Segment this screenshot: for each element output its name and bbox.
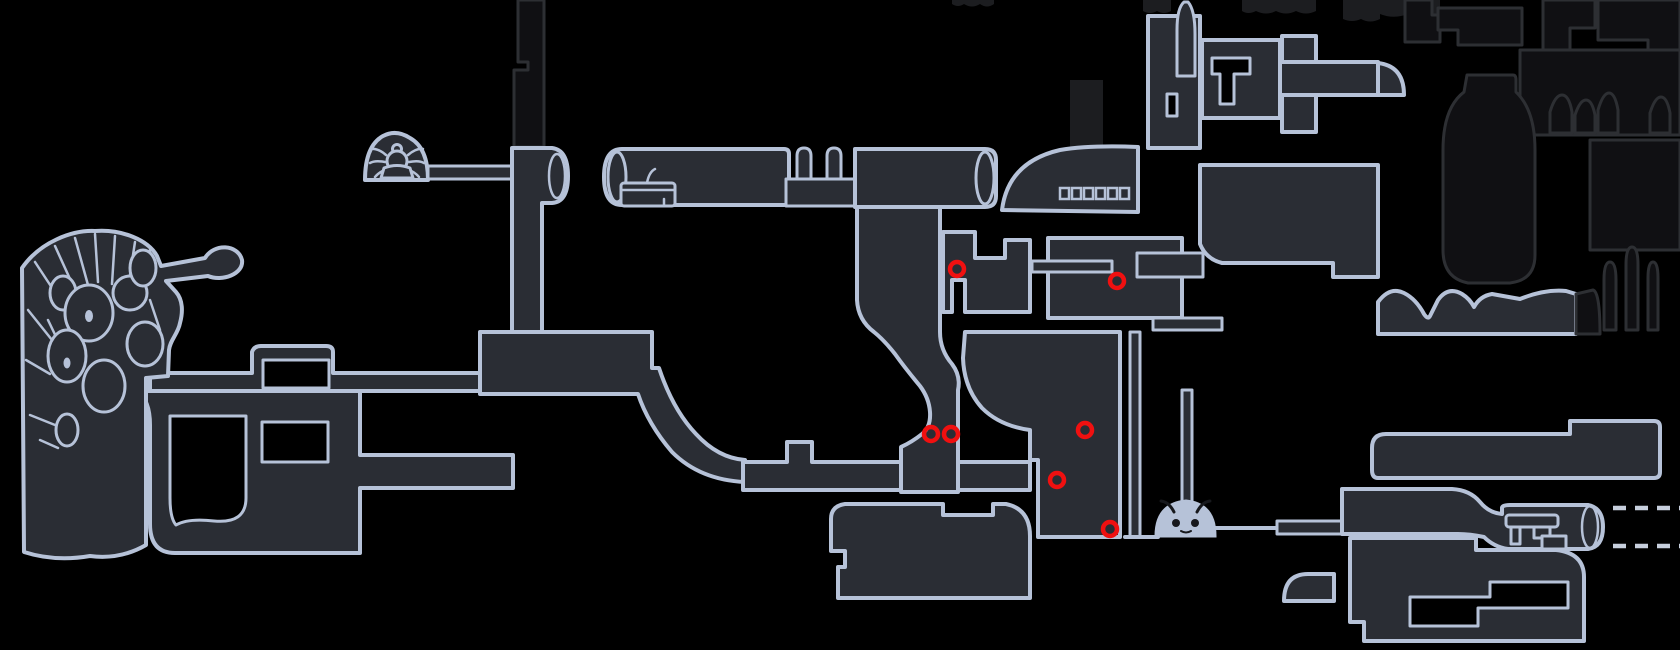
bridge-tooth (1084, 188, 1093, 199)
chimney-stub (827, 148, 841, 179)
dome-corridor (428, 166, 512, 179)
game-map-screen (0, 0, 1680, 650)
unexplored-flask-room (1443, 75, 1535, 283)
spike-icon (1604, 262, 1616, 330)
hut-icon (1598, 93, 1618, 133)
wall-room (1130, 332, 1140, 537)
explored-rooms (22, 2, 1660, 641)
map-canvas[interactable] (0, 0, 1680, 650)
egg-icon (130, 250, 156, 286)
vertical-tube-room (512, 148, 568, 334)
room-hole (170, 416, 246, 525)
floor-corridor (1277, 521, 1345, 534)
egg-icon (83, 360, 125, 412)
hut-icon (1575, 100, 1595, 133)
egg-icon (56, 414, 78, 446)
top-dome-room (1378, 63, 1404, 95)
undiscovered-room (1343, 0, 1380, 22)
mid-corridor (743, 442, 1030, 490)
unexplored-room (1438, 8, 1522, 45)
east-hall-room (1200, 165, 1378, 277)
hut-icon (1550, 95, 1572, 133)
corridor-hole (263, 360, 329, 388)
room-hole (1167, 94, 1177, 116)
south-hump-room (1284, 574, 1334, 601)
north-room (943, 232, 1030, 312)
bridge-tooth (1108, 188, 1117, 199)
undiscovered-room (952, 0, 994, 7)
undiscovered-room (1143, 0, 1171, 13)
spike-icons (1604, 247, 1658, 330)
stag-face-icon (1156, 501, 1215, 536)
bridge-tooth (1120, 188, 1129, 199)
platform-room (1153, 318, 1222, 330)
egg-icon (127, 322, 163, 366)
mound-ground-dark (1576, 290, 1600, 334)
obelisk-icon (1177, 2, 1195, 76)
undiscovered-room (1070, 80, 1103, 147)
mound-ground (1378, 291, 1576, 334)
chimney-stub (797, 148, 811, 179)
bridge-tooth (1072, 188, 1081, 199)
tube-connector (786, 179, 855, 206)
egg-icon (48, 330, 86, 382)
platform-room (1032, 261, 1112, 272)
bridge-tooth (1096, 188, 1105, 199)
undiscovered-room (1242, 0, 1316, 14)
unexplored-room (1543, 0, 1595, 53)
unexplored-shaft (514, 0, 544, 147)
hut-icon (1650, 97, 1670, 133)
shaft-room (1182, 390, 1192, 502)
plateau-room (480, 332, 745, 482)
central-room (963, 332, 1120, 537)
connector-corridor (1137, 253, 1203, 277)
spike-icon (1626, 247, 1638, 330)
top-room (1202, 40, 1280, 118)
bridge-tooth (1060, 188, 1069, 199)
west-corridor-room (150, 346, 515, 391)
dashed-passages (1613, 508, 1680, 546)
southeast-long-room (1372, 421, 1660, 478)
spike-icon (1648, 262, 1658, 330)
spider-icon (370, 145, 424, 179)
tube-cap (976, 152, 994, 204)
top-arm-corridor (1280, 62, 1378, 95)
bottom-hall-room (831, 504, 1030, 598)
curved-entry-room (1002, 146, 1138, 212)
room-hole (262, 422, 328, 462)
unexplored-room (1590, 140, 1680, 250)
